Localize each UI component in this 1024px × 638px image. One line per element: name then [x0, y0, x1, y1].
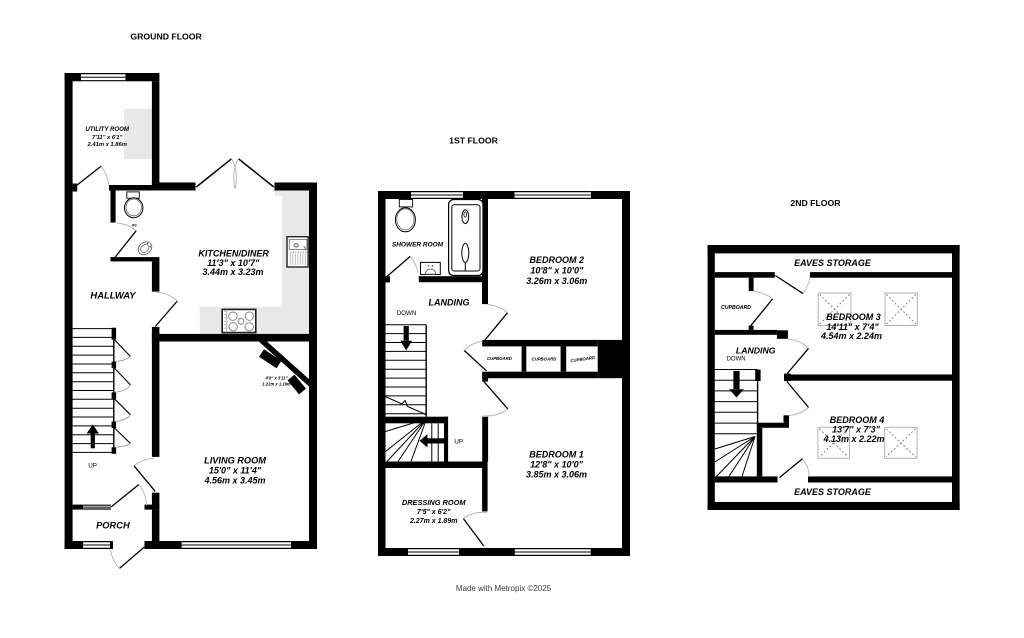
svg-text:DOWN: DOWN — [397, 310, 417, 317]
svg-text:GROUND FLOOR: GROUND FLOOR — [130, 31, 202, 41]
svg-text:LANDING: LANDING — [736, 346, 776, 356]
svg-text:UP: UP — [88, 463, 97, 470]
svg-text:BEDROOM 1: BEDROOM 1 — [529, 450, 584, 460]
svg-text:BEDROOM 2: BEDROOM 2 — [530, 255, 585, 265]
svg-text:7'11" x 6'1": 7'11" x 6'1" — [92, 135, 123, 141]
svg-text:SHOWER ROOM: SHOWER ROOM — [392, 242, 444, 249]
svg-text:CUPBOARD: CUPBOARD — [487, 356, 512, 361]
svg-text:WC: WC — [132, 224, 138, 228]
svg-text:CUPBOARD: CUPBOARD — [721, 305, 751, 311]
svg-text:DOWN: DOWN — [727, 356, 746, 362]
svg-text:2ND FLOOR: 2ND FLOOR — [790, 198, 841, 208]
svg-text:PORCH: PORCH — [96, 520, 130, 530]
svg-text:UTILITY ROOM: UTILITY ROOM — [85, 126, 129, 133]
svg-text:3.26m x 3.06m: 3.26m x 3.06m — [526, 276, 587, 286]
svg-text:1.22m x 1.19m: 1.22m x 1.19m — [262, 382, 291, 387]
svg-text:HALLWAY: HALLWAY — [90, 289, 136, 300]
svg-text:CUPBOARD: CUPBOARD — [531, 357, 556, 362]
svg-text:7'5" x 6'2": 7'5" x 6'2" — [417, 509, 451, 516]
svg-text:10'8" x 10'0": 10'8" x 10'0" — [530, 265, 584, 275]
svg-text:12'8" x 10'0": 12'8" x 10'0" — [530, 460, 584, 470]
svg-text:EAVES STORAGE: EAVES STORAGE — [794, 258, 872, 268]
svg-text:1ST FLOOR: 1ST FLOOR — [449, 136, 498, 146]
svg-text:BEDROOM 4: BEDROOM 4 — [830, 415, 885, 425]
svg-text:BEDROOM 3: BEDROOM 3 — [826, 312, 881, 322]
svg-text:Made with Metropix ©2025: Made with Metropix ©2025 — [456, 584, 552, 593]
svg-text:LIVING ROOM: LIVING ROOM — [204, 456, 266, 466]
svg-text:3.85m x 3.06m: 3.85m x 3.06m — [526, 469, 587, 479]
svg-text:4.13m x 2.22m: 4.13m x 2.22m — [822, 434, 884, 444]
svg-text:15'0" x 11'4": 15'0" x 11'4" — [209, 466, 262, 476]
svg-text:2.27m x 1.89m: 2.27m x 1.89m — [409, 518, 457, 525]
svg-text:LANDING: LANDING — [429, 298, 470, 308]
svg-text:3.44m x 3.23m: 3.44m x 3.23m — [202, 267, 263, 277]
svg-text:DRESSING ROOM: DRESSING ROOM — [402, 498, 466, 507]
svg-text:4.56m x 3.45m: 4.56m x 3.45m — [203, 476, 265, 486]
svg-text:UP: UP — [454, 438, 463, 445]
svg-text:2.41m x 1.86m: 2.41m x 1.86m — [87, 142, 127, 148]
svg-text:EAVES STORAGE: EAVES STORAGE — [794, 487, 872, 497]
svg-text:4.54m x 2.24m: 4.54m x 2.24m — [820, 331, 882, 341]
svg-text:4'0" x 3'11": 4'0" x 3'11" — [265, 375, 289, 380]
